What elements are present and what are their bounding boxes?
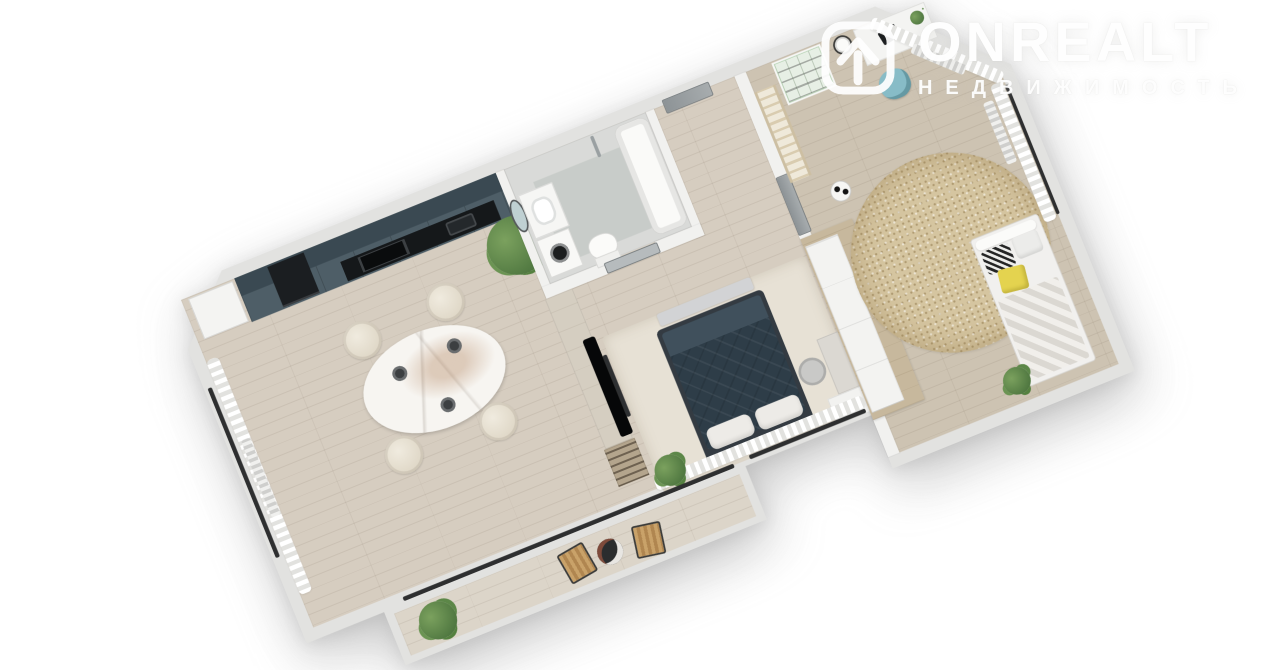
onrealt-house-icon	[814, 14, 902, 107]
dinner-plate	[445, 336, 464, 355]
floor-plan-render: ONREALT НЕДВИЖИМОСТЬ	[0, 0, 1280, 670]
watermark-brand: ONREALT	[918, 14, 1250, 70]
washer-drum	[547, 241, 572, 266]
watermark: ONREALT НЕДВИЖИМОСТЬ	[814, 14, 1250, 107]
dinner-plate	[390, 364, 409, 383]
watermark-tagline: НЕДВИЖИМОСТЬ	[918, 77, 1250, 100]
washbasin	[528, 194, 559, 228]
dinner-plate	[438, 395, 457, 414]
watermark-text: ONREALT НЕДВИЖИМОСТЬ	[918, 14, 1250, 100]
